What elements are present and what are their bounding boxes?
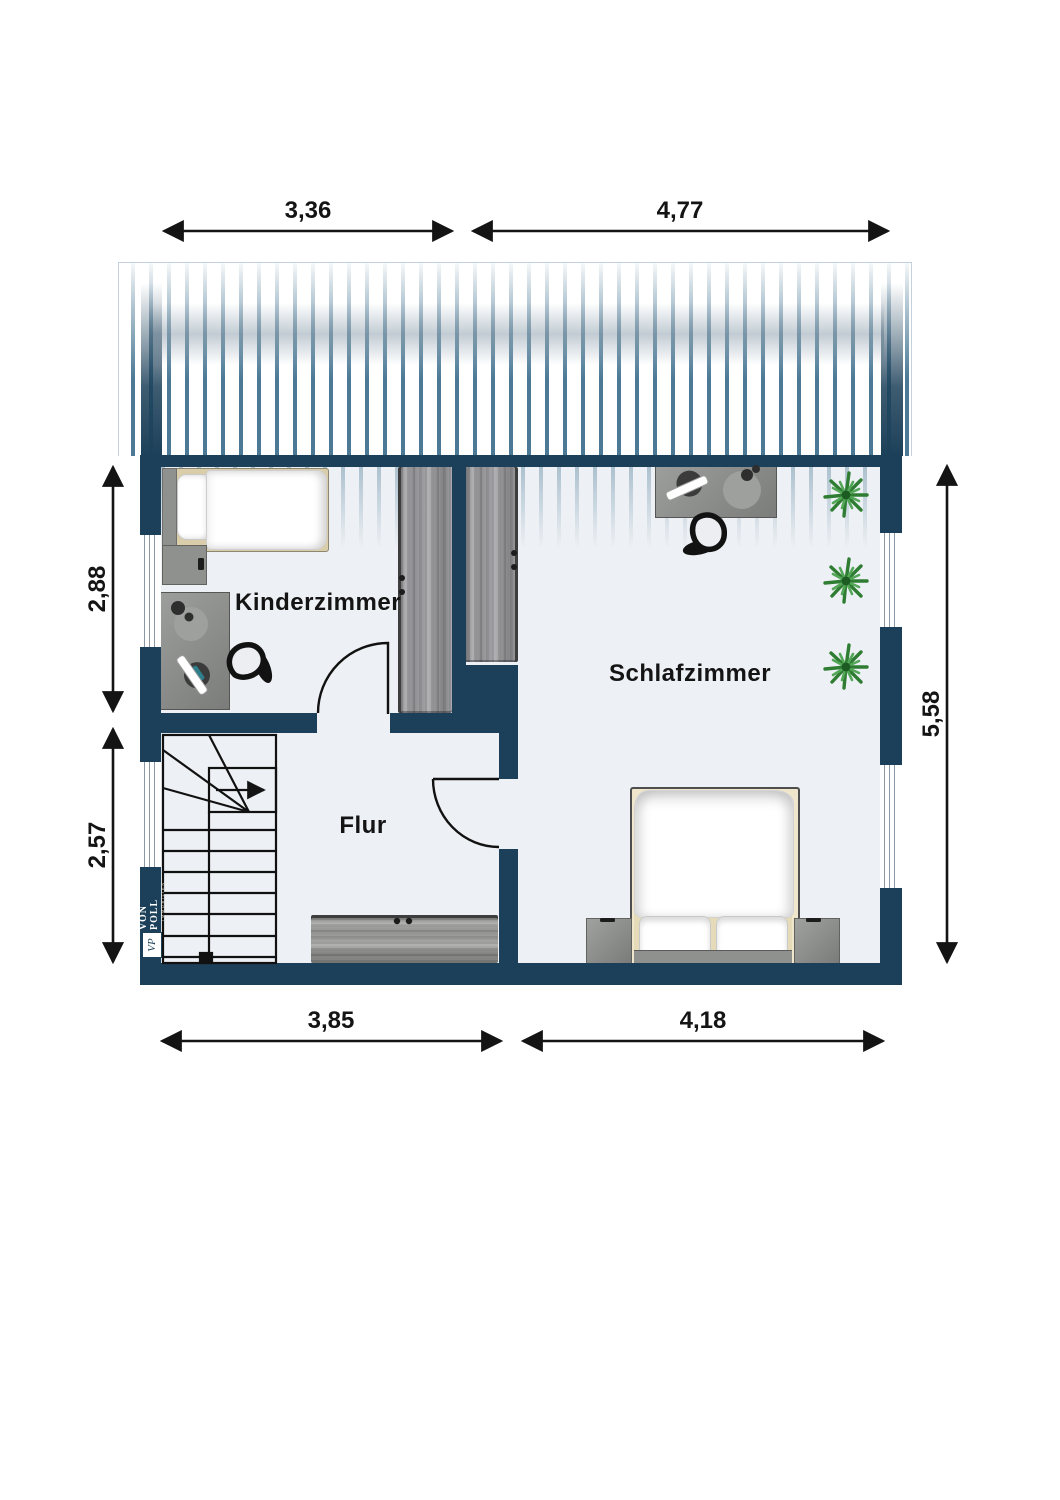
dim-top-left: 3,36 — [258, 196, 358, 226]
desk-kinderzimmer — [160, 592, 230, 710]
wall-flur-schlafzimmer-top — [499, 733, 518, 779]
dim-top-right: 4,77 — [630, 196, 730, 226]
wall-kinderzimmer-flur-right — [390, 713, 452, 733]
brand-name: VON POLL — [138, 872, 160, 930]
room-label-schlafzimmer: Schlafzimmer — [610, 659, 770, 689]
brand-logo: VON POLL IMMOBILIEN — [141, 872, 161, 930]
window-flur — [140, 762, 161, 867]
brand-subtitle: IMMOBILIEN — [160, 881, 165, 921]
wardrobe-kinderzimmer — [398, 467, 452, 713]
double-bed-base — [634, 950, 792, 964]
nightstand-kinderzimmer — [162, 545, 207, 585]
wall-bottom — [140, 963, 902, 985]
wall-flur-schlafzimmer-bottom — [499, 849, 518, 963]
roof-knee-wall-shadow — [149, 303, 884, 365]
dim-left-upper: 2,88 — [83, 539, 113, 639]
window-kinderzimmer — [140, 535, 161, 647]
window-schlafzimmer-upper — [880, 533, 902, 627]
wall-top — [140, 455, 902, 467]
dim-bottom-right: 4,18 — [653, 1006, 753, 1036]
window-schlafzimmer-lower — [880, 765, 902, 888]
dim-right: 5,58 — [917, 664, 947, 764]
nightstand-right — [794, 918, 840, 965]
room-label-flur: Flur — [323, 811, 403, 841]
roof-hatch-area — [118, 262, 912, 456]
dim-bottom-left: 3,85 — [281, 1006, 381, 1036]
room-label-kinderzimmer: Kinderzimmer — [238, 588, 398, 618]
single-bed-duvet — [206, 470, 327, 550]
brand-monogram: VP — [142, 932, 162, 958]
wall-kinderzimmer-flur-left — [161, 713, 317, 733]
wall-core — [452, 665, 518, 733]
left-wall-fade — [141, 283, 162, 456]
dim-left-lower: 2,57 — [83, 795, 113, 895]
double-bed-duvet — [634, 790, 794, 918]
nightstand-left — [586, 918, 632, 965]
floorplan-canvas: Kinderzimmer Schlafzimmer Flur 3,36 4,77… — [0, 0, 1060, 1500]
wardrobe-schlafzimmer — [465, 467, 518, 662]
wall-partition-kinderzimmer-schlafzimmer — [452, 467, 466, 665]
single-bed-headboard — [162, 468, 177, 552]
desk-schlafzimmer — [655, 465, 777, 518]
sideboard — [311, 915, 498, 963]
right-wall-fade — [881, 283, 903, 456]
